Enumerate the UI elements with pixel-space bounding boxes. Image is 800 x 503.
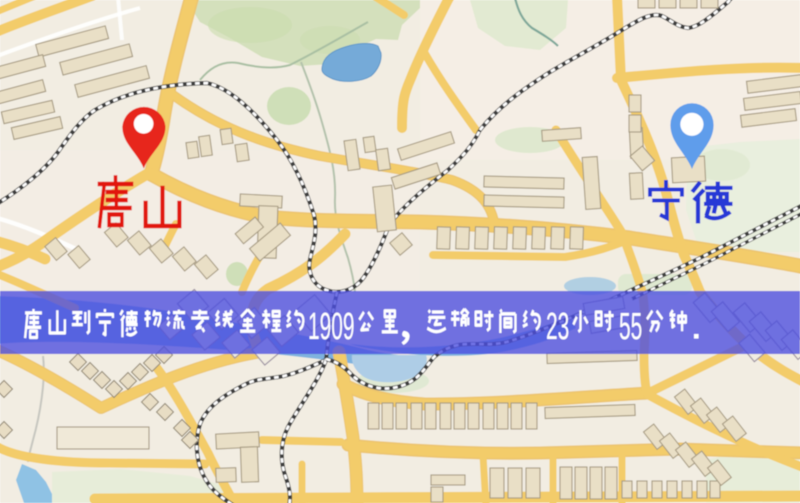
svg-text:23: 23 — [546, 306, 569, 348]
svg-text:1909: 1909 — [308, 306, 354, 348]
svg-text:55: 55 — [619, 306, 642, 348]
